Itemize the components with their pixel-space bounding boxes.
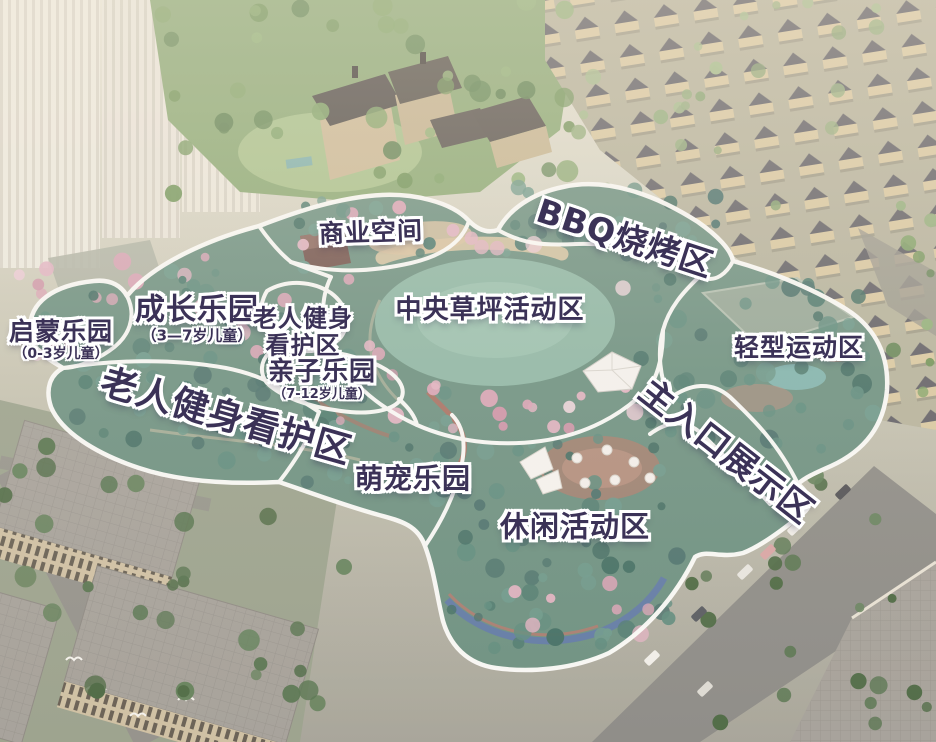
- laoren-small-line1: 老人健身: [253, 306, 353, 333]
- zone-label-qinzi: 亲子乐园 （7-12岁儿童）: [268, 358, 376, 402]
- zone-label-chengzhang: 成长乐园 （3—7岁儿童）: [135, 293, 259, 344]
- xiuxian-title: 休闲活动区: [500, 510, 650, 543]
- qingxing-title: 轻型运动区: [734, 334, 864, 363]
- zone-label-shangye: 商业空间: [319, 217, 424, 249]
- zhongyang-title: 中央草坪活动区: [395, 296, 584, 326]
- mengchong-title: 萌宠乐园: [355, 463, 471, 495]
- chengzhang-title: 成长乐园: [135, 293, 259, 327]
- chengzhang-age-range: （3—7岁儿童）: [135, 328, 259, 345]
- zone-label-qimeng: 启蒙乐园 （0-3岁儿童）: [9, 318, 113, 362]
- qimeng-title: 启蒙乐园: [9, 318, 113, 347]
- zone-label-laoren-small: 老人健身 看护区: [253, 306, 353, 361]
- zone-label-xiuxian: 休闲活动区: [500, 510, 650, 543]
- shangye-title: 商业空间: [319, 217, 424, 249]
- zone-label-qingxing: 轻型运动区: [734, 334, 864, 363]
- qinzi-age-range: （7-12岁儿童）: [268, 387, 376, 402]
- qinzi-title: 亲子乐园: [268, 358, 376, 388]
- zone-label-mengchong: 萌宠乐园: [355, 463, 471, 495]
- masterplan-scene: 启蒙乐园 （0-3岁儿童） 成长乐园 （3—7岁儿童） 老人健身 看护区 商业空…: [0, 0, 936, 742]
- qimeng-age-range: （0-3岁儿童）: [9, 346, 113, 362]
- zone-label-zhongyang: 中央草坪活动区: [395, 296, 584, 326]
